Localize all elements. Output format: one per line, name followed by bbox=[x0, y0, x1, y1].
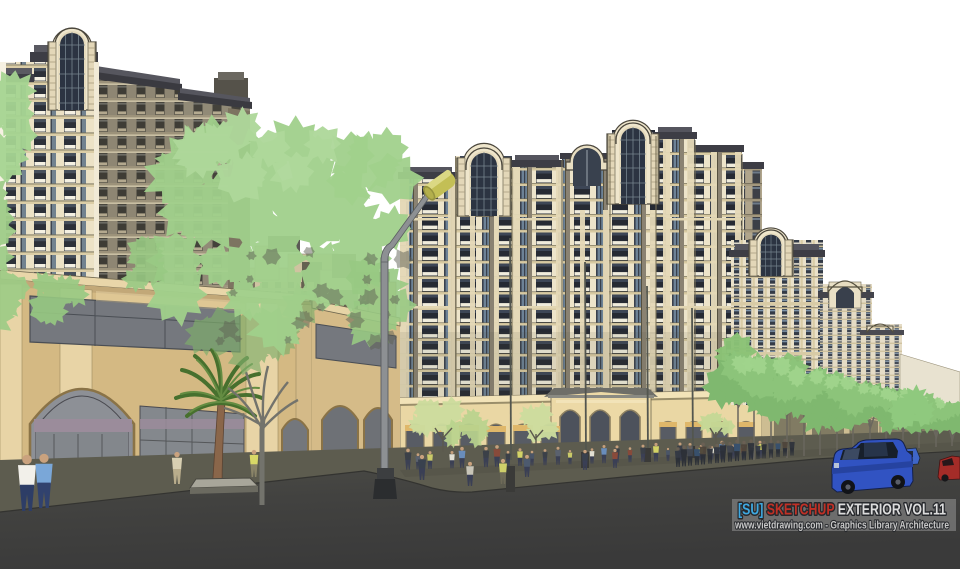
svg-text:[SU] SKETCHUP EXTERIOR VOL.11: [SU] SKETCHUP EXTERIOR VOL.11 bbox=[738, 502, 946, 519]
svg-text:www.vietdrawing.com - Graphics: www.vietdrawing.com - Graphics Library A… bbox=[734, 520, 949, 532]
